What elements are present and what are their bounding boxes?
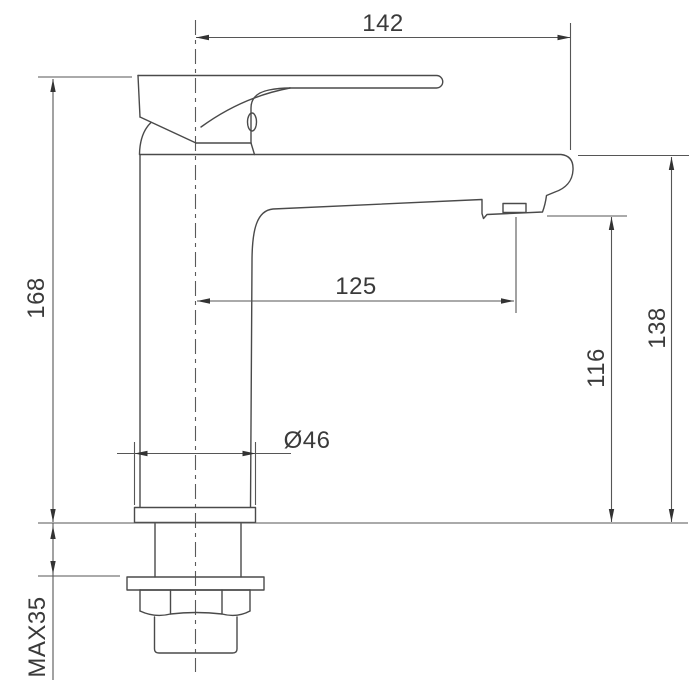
- faucet-dimension-drawing: 142 168 125 116 138 Ø46: [0, 0, 700, 700]
- body-and-spout: [140, 155, 574, 508]
- arrow-left: [135, 451, 148, 456]
- arrow-down: [669, 509, 674, 522]
- arrow-up: [669, 157, 674, 170]
- dim-label-deck-to-spout-height: 138: [644, 307, 671, 349]
- dimension-deck-to-spout-height: 138: [578, 156, 689, 523]
- dimension-total-height: 168: [23, 77, 132, 522]
- arrow-up: [609, 217, 614, 230]
- arrow-right: [558, 35, 571, 40]
- handle-base-diagonal: [140, 117, 196, 143]
- neck-connector: [251, 143, 255, 155]
- dome-left-arc: [140, 123, 152, 155]
- dim-label-max-counter-thickness: MAX35: [24, 596, 51, 677]
- faucet-outline: [127, 76, 573, 654]
- dimension-max-counter-thickness: MAX35: [24, 523, 120, 680]
- arrow-down: [609, 509, 614, 522]
- arrow-right: [501, 298, 514, 303]
- arrow-down: [50, 509, 55, 522]
- arrow-up: [50, 79, 55, 92]
- dimension-spout-reach: 125: [197, 217, 516, 313]
- arrow-left: [197, 298, 210, 303]
- arrow-down: [50, 561, 55, 574]
- dimension-spout-outlet-height: 116: [547, 216, 627, 522]
- dimension-top-width: 142: [196, 10, 571, 150]
- aerator-outlet: [503, 204, 526, 213]
- handle-lever: [138, 76, 443, 89]
- lever-underside-curve: [201, 88, 290, 127]
- arrow-left: [196, 35, 209, 40]
- handle-base-left-edge: [138, 76, 140, 118]
- dim-label-top-width: 142: [362, 10, 404, 37]
- handle-button: [248, 113, 257, 131]
- arrow-right: [243, 451, 256, 456]
- handle-neck: [251, 88, 290, 143]
- dim-label-spout-outlet-height: 116: [583, 348, 610, 388]
- dim-label-spout-reach: 125: [335, 273, 377, 300]
- dim-label-total-height: 168: [23, 277, 50, 319]
- dim-label-base-diameter: Ø46: [284, 427, 331, 454]
- dimension-base-diameter: Ø46: [117, 427, 330, 505]
- arrow-up: [50, 526, 55, 539]
